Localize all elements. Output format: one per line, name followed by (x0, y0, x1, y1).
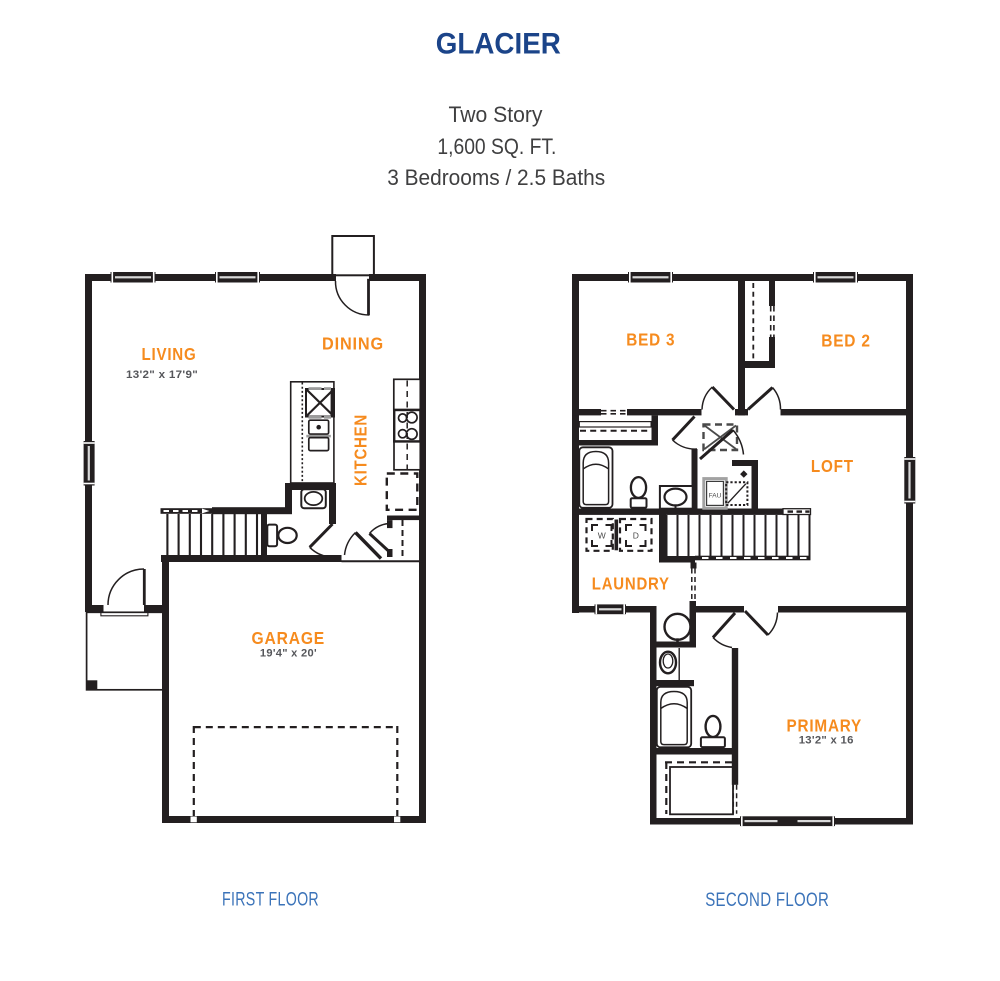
svg-text:BED 3: BED 3 (626, 330, 675, 350)
svg-text:FIRST FLOOR: FIRST FLOOR (222, 889, 319, 911)
svg-text:W: W (598, 531, 606, 541)
svg-text:1,600 SQ. FT.: 1,600 SQ. FT. (437, 134, 556, 159)
svg-text:GLACIER: GLACIER (436, 27, 561, 60)
svg-text:GARAGE: GARAGE (252, 628, 326, 648)
svg-text:13'2" x 16: 13'2" x 16 (799, 735, 854, 747)
svg-text:19'4" x 20': 19'4" x 20' (260, 648, 317, 660)
svg-text:DINING: DINING (322, 333, 384, 353)
svg-text:LAUNDRY: LAUNDRY (592, 573, 670, 593)
svg-text:3 Bedrooms / 2.5 Baths: 3 Bedrooms / 2.5 Baths (387, 165, 605, 190)
svg-text:13'2" x 17'9": 13'2" x 17'9" (126, 369, 198, 381)
svg-text:LIVING: LIVING (142, 344, 197, 364)
svg-text:Two Story: Two Story (449, 102, 544, 127)
svg-text:KITCHEN: KITCHEN (351, 414, 371, 486)
svg-text:FAU: FAU (709, 493, 722, 500)
svg-text:D: D (633, 531, 639, 541)
svg-text:PRIMARY: PRIMARY (787, 716, 863, 736)
svg-text:BED 2: BED 2 (821, 331, 871, 351)
svg-text:LOFT: LOFT (811, 456, 854, 476)
svg-text:SECOND FLOOR: SECOND FLOOR (705, 889, 829, 911)
